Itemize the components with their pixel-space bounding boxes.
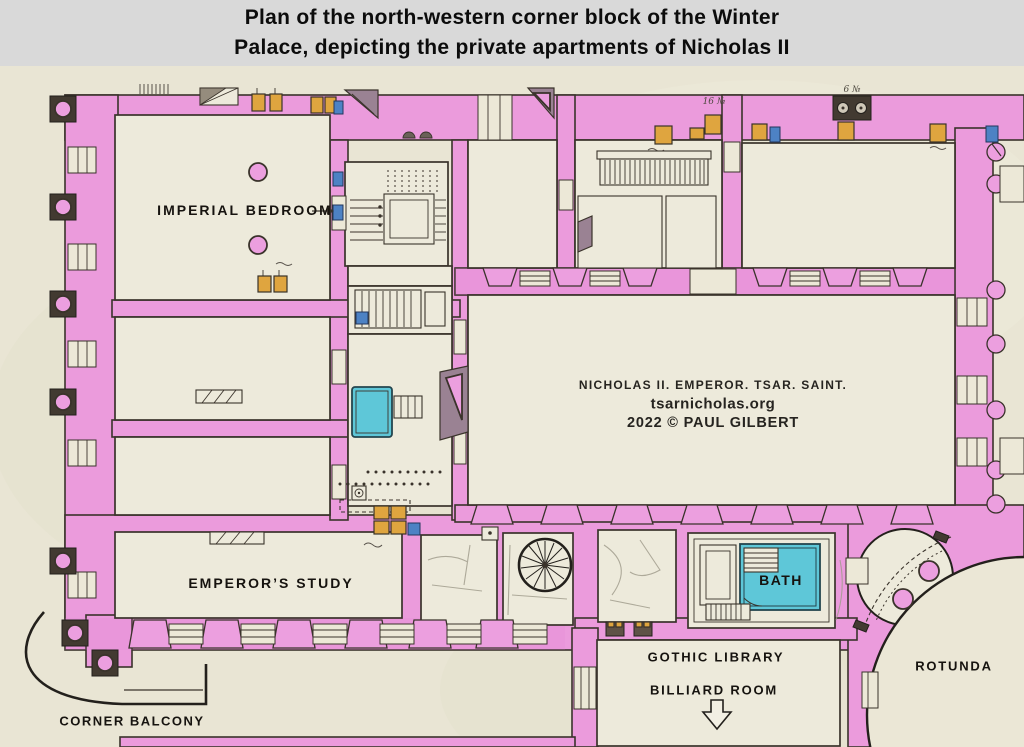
door-handle-icon	[333, 205, 343, 220]
north-east-room	[742, 143, 955, 268]
label-billiard-room: BILLIARD ROOM	[650, 683, 778, 698]
stove-count-note: 6 №	[843, 85, 860, 95]
watermark-line2: tsarnicholas.org	[651, 396, 776, 413]
stove-icon	[752, 124, 780, 142]
label-gothic-library: GOTHIC LIBRARY	[648, 650, 785, 665]
page-title-line1: Plan of the north-western corner block o…	[245, 3, 780, 33]
label-imperial-bedroom: IMPERIAL BEDROOM	[157, 202, 333, 218]
label-emperors-study: EMPEROR’S STUDY	[188, 575, 353, 591]
corridor	[468, 140, 557, 268]
label-rotunda: ROTUNDA	[915, 659, 993, 674]
steps-icon	[706, 604, 750, 620]
drawing-room	[115, 317, 330, 420]
corner-stove-icon	[578, 216, 592, 252]
south-facade-pilasters	[129, 620, 547, 648]
floor-plan-drawing	[0, 0, 1024, 747]
bench-icon	[200, 88, 238, 105]
bench-icon	[196, 390, 242, 403]
column-icon	[893, 589, 913, 609]
stove-count-note: 16 №	[703, 97, 726, 107]
label-bath: BATH	[759, 572, 803, 588]
bench-icon	[210, 532, 264, 544]
staircase-icon	[355, 290, 445, 328]
radiator-icon	[597, 151, 711, 185]
column-icon	[919, 561, 939, 581]
watermark-line1: NICHOLAS II. EMPEROR. TSAR. SAINT.	[579, 378, 847, 392]
door-handle-icon	[333, 172, 343, 186]
washstand-icon	[700, 545, 736, 605]
title-bar: Plan of the north-western corner block o…	[0, 0, 1024, 66]
page-title-line2: Palace, depicting the private apartments…	[234, 33, 790, 63]
column-icon	[249, 236, 267, 254]
stove-icon	[655, 126, 672, 144]
label-corner-balcony: CORNER BALCONY	[59, 714, 204, 729]
corner-stove-icon	[440, 366, 468, 440]
floor-plan-page: Plan of the north-western corner block o…	[0, 0, 1024, 747]
wall-cabinet-icon	[482, 527, 498, 540]
column-icon	[249, 163, 267, 181]
dressing-room	[115, 437, 330, 515]
watermark-line3: 2022 © PAUL GILBERT	[627, 415, 799, 431]
spiral-staircase-icon	[519, 539, 571, 591]
